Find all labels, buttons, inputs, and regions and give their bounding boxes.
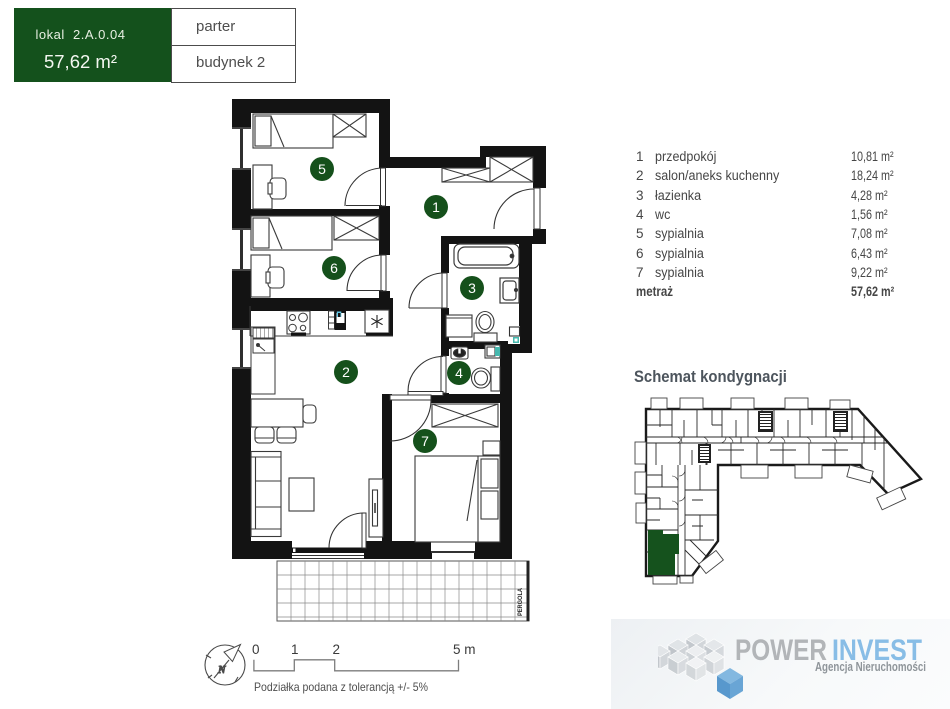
svg-text:1: 1 [291,642,299,657]
svg-text:4: 4 [455,365,463,381]
svg-text:Podziałka podana z tolerancją: Podziałka podana z tolerancją +/- 5% [254,680,428,694]
svg-text:5 m: 5 m [453,642,476,657]
svg-text:2: 2 [342,364,350,380]
svg-text:5: 5 [318,161,326,177]
svg-text:3: 3 [468,280,476,296]
svg-text:1: 1 [432,199,440,215]
svg-text:2: 2 [333,642,341,657]
svg-text:7: 7 [421,433,429,449]
svg-text:PERGOLA: PERGOLA [517,588,524,616]
svg-text:6: 6 [330,260,338,276]
svg-text:N: N [217,664,226,676]
svg-text:0: 0 [252,642,260,657]
